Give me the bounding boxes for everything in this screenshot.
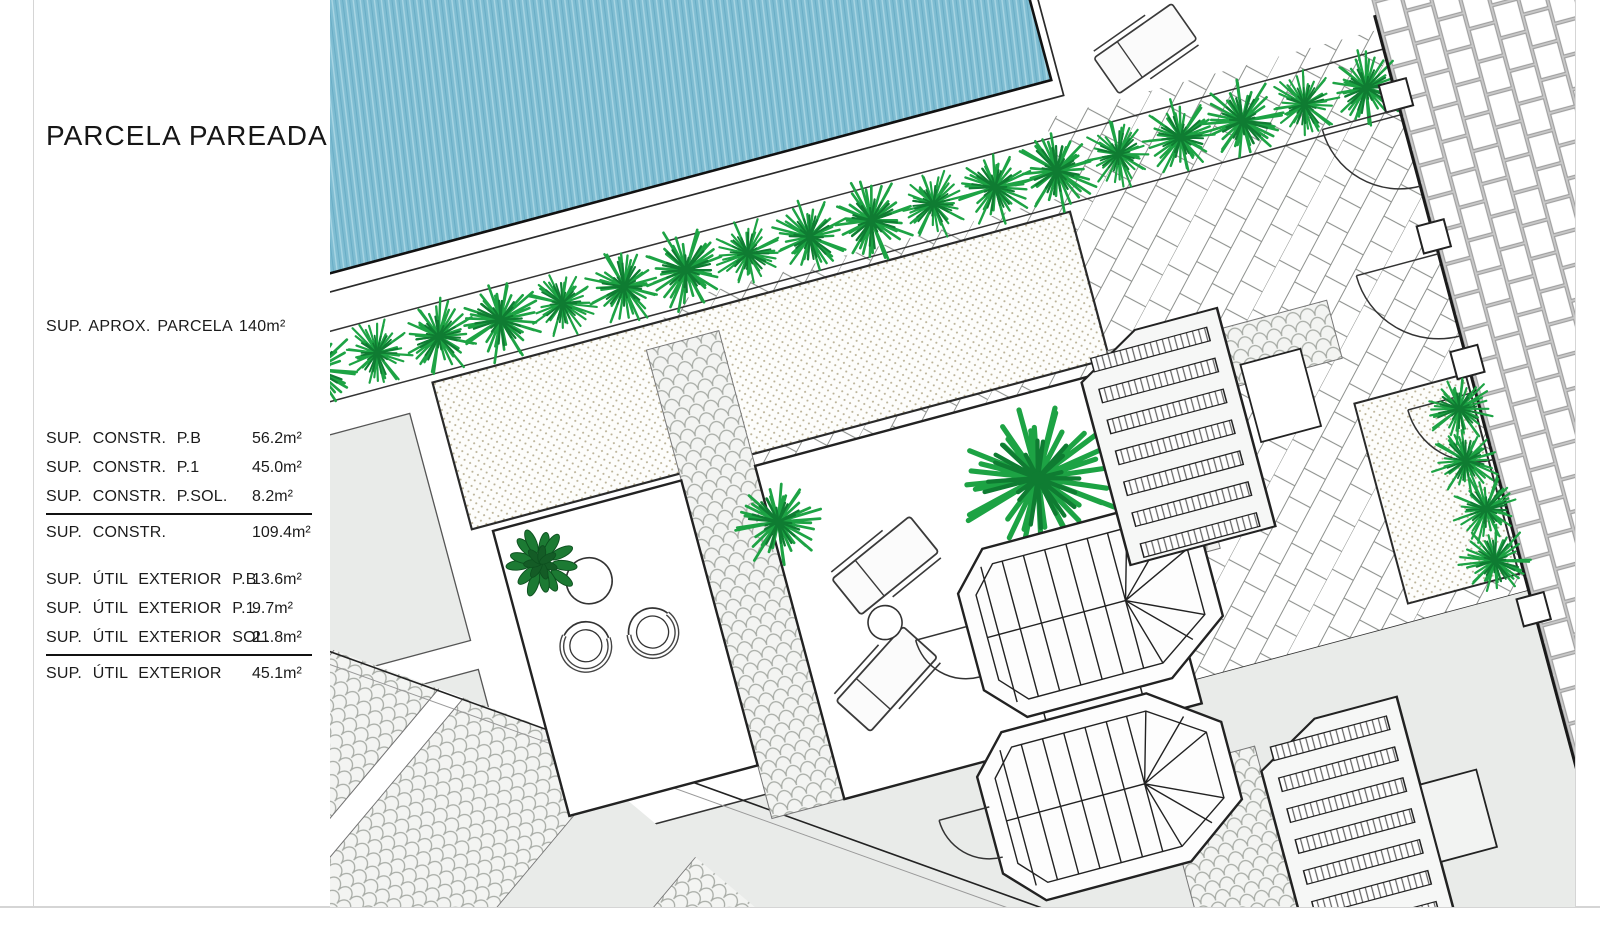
site-plan bbox=[330, 0, 1575, 907]
table-row: SUP. ÚTIL EXTERIOR SOL. 21.8m² bbox=[46, 623, 312, 652]
area-label: SUP. CONSTR. bbox=[46, 524, 166, 541]
area-value: 109.4m² bbox=[252, 518, 311, 547]
table-row: SUP. ÚTIL EXTERIOR P.B 13.6m² bbox=[46, 565, 312, 594]
table-row: SUP. ÚTIL EXTERIOR P.1 9.7m² bbox=[46, 594, 312, 623]
wall-pier bbox=[1450, 345, 1484, 379]
wall-pier bbox=[1379, 78, 1413, 112]
area-label: SUP. CONSTR. P.1 bbox=[46, 459, 199, 476]
area-value: 8.2m² bbox=[252, 482, 293, 511]
area-label: SUP. ÚTIL EXTERIOR P.B bbox=[46, 571, 257, 588]
table-row: SUP. CONSTR. P.1 45.0m² bbox=[46, 453, 312, 482]
table-total-rule bbox=[46, 654, 312, 656]
wall-pier bbox=[1417, 219, 1451, 253]
area-value: 45.1m² bbox=[252, 659, 302, 688]
table-total-rule bbox=[46, 513, 312, 515]
area-value: 56.2m² bbox=[252, 424, 302, 453]
area-label: SUP. ÚTIL EXTERIOR SOL. bbox=[46, 629, 270, 646]
sheet-right-border bbox=[1575, 0, 1576, 906]
area-label: SUP. CONSTR. P.SOL. bbox=[46, 488, 228, 505]
built-areas-table: SUP. CONSTR. P.B 56.2m² SUP. CONSTR. P.1… bbox=[46, 424, 312, 547]
wall-pier bbox=[1517, 592, 1551, 626]
area-value: 9.7m² bbox=[252, 594, 293, 623]
table-total-row: SUP. CONSTR. 109.4m² bbox=[46, 518, 312, 547]
drawing-sheet: PARCELA PAREADA SUP. APROX. PARCELA 140m… bbox=[0, 0, 1600, 950]
page-title: PARCELA PAREADA bbox=[46, 120, 328, 152]
table-total-row: SUP. ÚTIL EXTERIOR 45.1m² bbox=[46, 659, 312, 688]
table-row: SUP. CONSTR. P.B 56.2m² bbox=[46, 424, 312, 453]
table-row: SUP. CONSTR. P.SOL. 8.2m² bbox=[46, 482, 312, 511]
parcel-approx-area: SUP. APROX. PARCELA 140m² bbox=[46, 318, 286, 336]
area-value: 21.8m² bbox=[252, 623, 302, 652]
site-plan-svg bbox=[330, 0, 1575, 907]
area-value: 13.6m² bbox=[252, 565, 302, 594]
exterior-areas-table: SUP. ÚTIL EXTERIOR P.B 13.6m² SUP. ÚTIL … bbox=[46, 565, 312, 688]
area-label: SUP. ÚTIL EXTERIOR bbox=[46, 665, 222, 682]
area-value: 45.0m² bbox=[252, 453, 302, 482]
area-label: SUP. ÚTIL EXTERIOR P.1 bbox=[46, 600, 255, 617]
area-label: SUP. CONSTR. P.B bbox=[46, 430, 201, 447]
sheet-left-border bbox=[33, 0, 34, 906]
